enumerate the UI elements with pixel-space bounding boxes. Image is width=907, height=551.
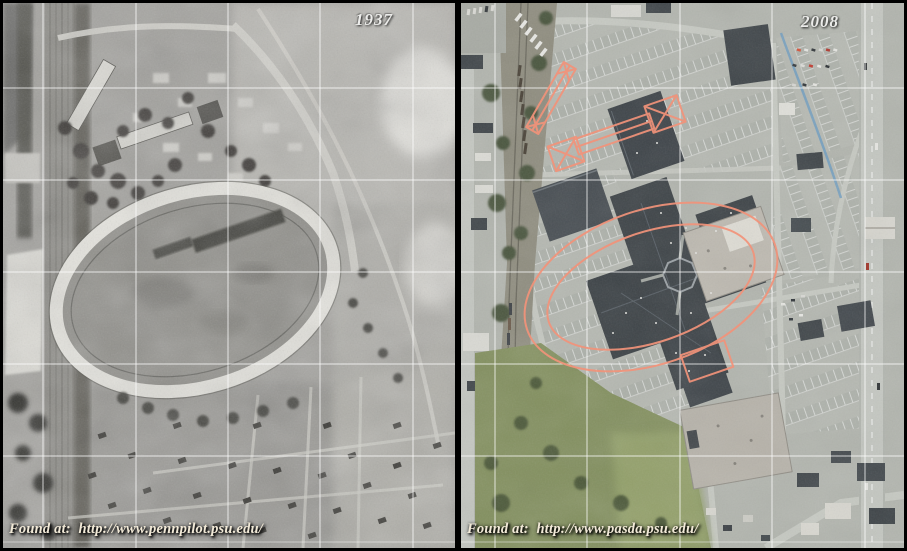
photo-canvas-2008 xyxy=(461,3,904,548)
photo-comparison: 1937 Found at: http://www.pennpilot.psu.… xyxy=(0,0,907,551)
caption-2008: Found at: http://www.pasda.psu.edu/ Prov… xyxy=(467,486,698,548)
photo-canvas-1937 xyxy=(3,3,455,548)
caption-found-at: Found at: http://www.pennpilot.psu.edu/ xyxy=(9,521,263,539)
year-label-2008: 2008 xyxy=(801,13,839,30)
aerial-photo-2008: 2008 Found at: http://www.pasda.psu.edu/… xyxy=(461,3,904,548)
year-label-1937: 1937 xyxy=(355,11,393,28)
caption-found-at: Found at: http://www.pasda.psu.edu/ xyxy=(467,521,698,539)
caption-1937: Found at: http://www.pennpilot.psu.edu/ … xyxy=(9,486,263,548)
aerial-photo-1937: 1937 Found at: http://www.pennpilot.psu.… xyxy=(3,3,455,548)
